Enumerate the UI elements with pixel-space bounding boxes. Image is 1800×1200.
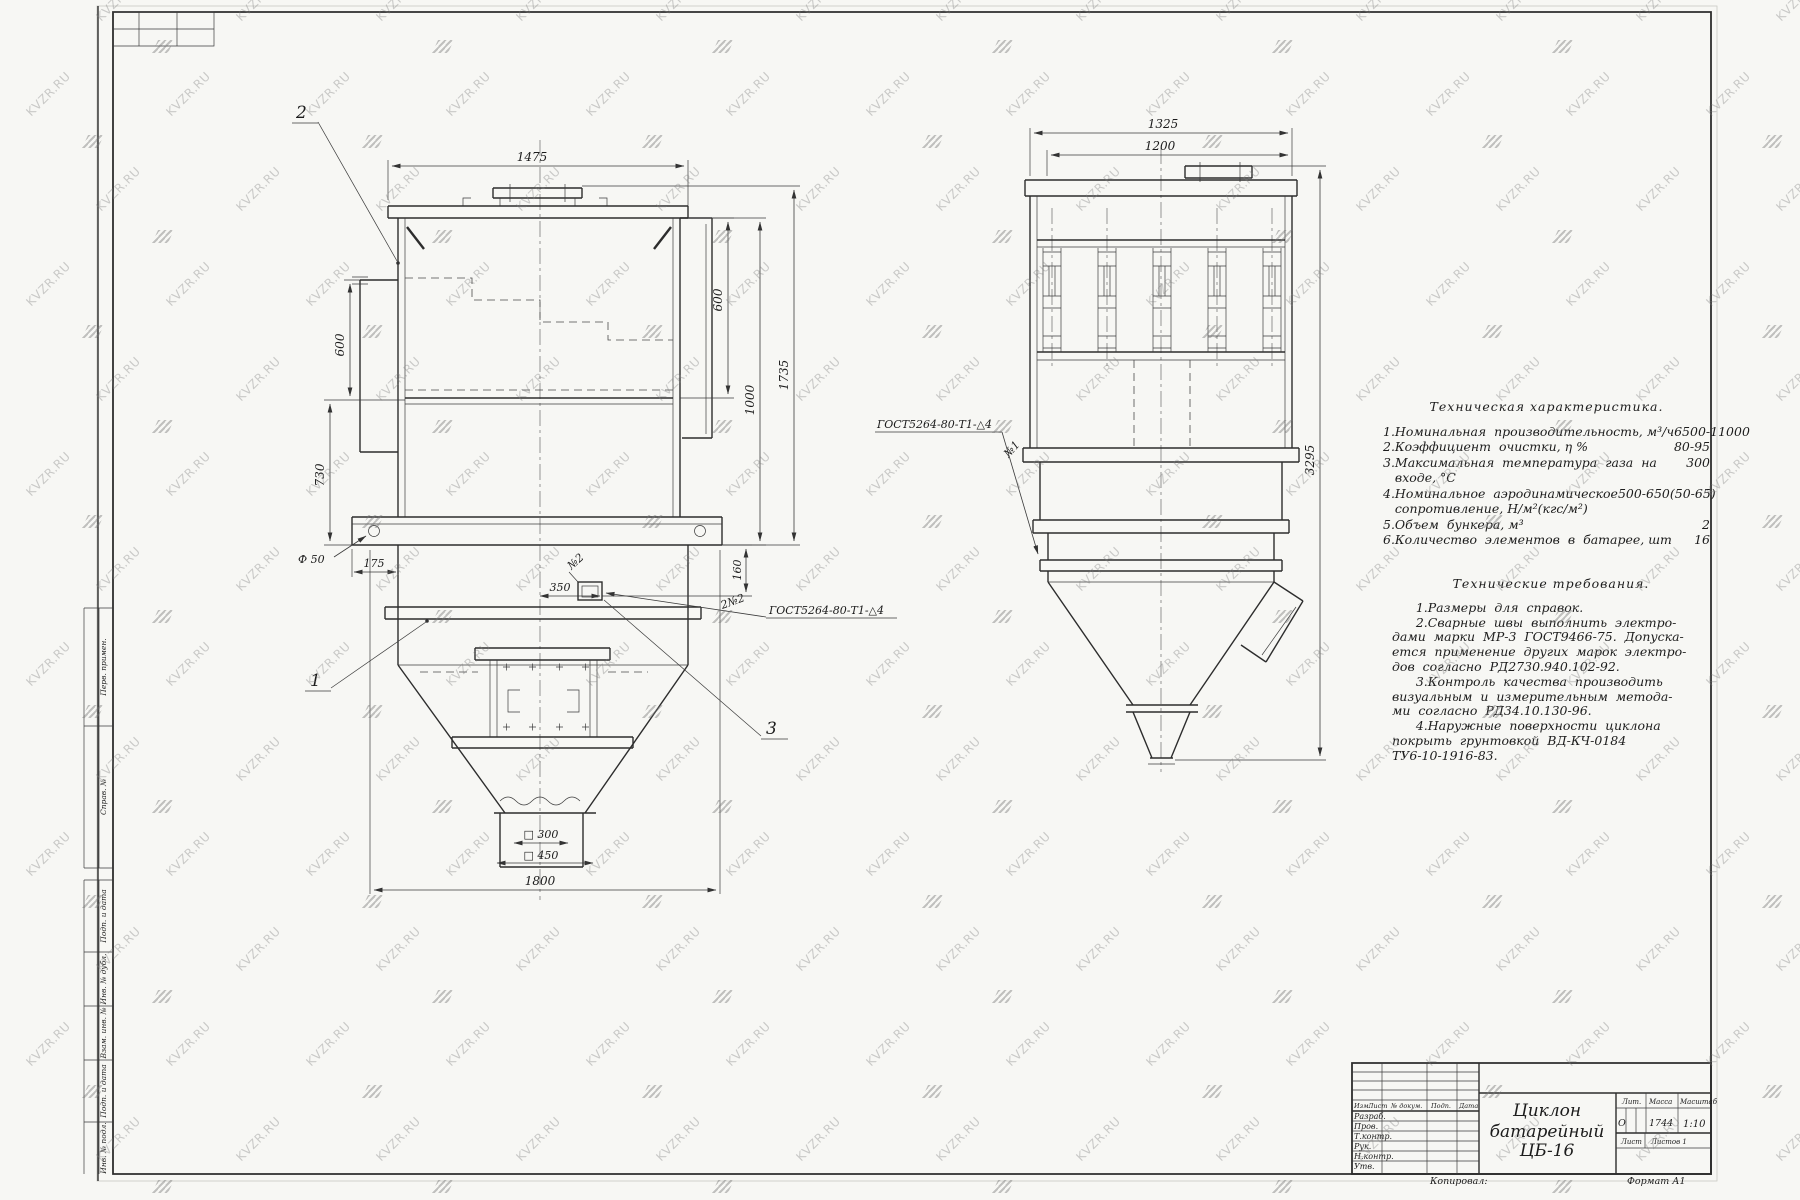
margin-label-podp-data-1: Подп. и дата <box>99 889 108 943</box>
tech-char-line: 2.Коэффициент очистки, η %80-95 <box>1383 439 1710 455</box>
tech-req-line: ТУ6-10-1916-83. <box>1392 749 1710 764</box>
tech-char-title: Техническая характеристика. <box>1383 399 1710 415</box>
margin-label-perv-primen: Перв. примен. <box>99 638 108 696</box>
tb-scale-value: 1:10 <box>1683 1119 1706 1130</box>
tech-req-title: Технические требования. <box>1392 577 1710 592</box>
front-dim-160: 160 <box>731 560 744 581</box>
front-dim-phi50: Ф 50 <box>298 553 325 566</box>
side-dim-height-3295: 3295 <box>1303 445 1317 476</box>
side-view: 1325 1200 3295 <box>875 117 1326 772</box>
front-dim-left-730: 730 <box>313 463 327 486</box>
tb-lit-value: О <box>1618 1118 1626 1129</box>
tb-col-data: Дата <box>1458 1102 1478 1110</box>
tb-row-utv: Утв. <box>1354 1162 1375 1171</box>
front-dim-175: 175 <box>364 557 385 570</box>
margin-label-podp-data-2: Подп. и дата <box>99 1064 108 1118</box>
front-weld-qty: 2№2 <box>718 591 746 612</box>
tech-req-line: 1.Размеры для справок. <box>1392 601 1710 616</box>
side-dim-top-1325: 1325 <box>1148 117 1179 131</box>
front-dim-outlet-flange: □ 450 <box>524 849 559 862</box>
tb-doc-title-line3: ЦБ-16 <box>1519 1141 1575 1161</box>
tech-char-line: 3.Максимальная температура газа на300 <box>1383 455 1710 471</box>
tech-req-line: визуальным и измерительным метода- <box>1392 690 1710 705</box>
drawing-sheet: Перв. примен. Справ. № Подп. и дата Инв.… <box>0 0 1800 1200</box>
margin-label-inv-dubl: Инв. № дубл. <box>99 954 108 1006</box>
tech-char-line: сопротивление, Н/м²(кгс/м²) <box>1383 501 1710 517</box>
tech-req-line: ми согласно РД34.10.130-96. <box>1392 704 1710 719</box>
corner-stamp <box>113 12 214 46</box>
kopiroval-label: Копировал: <box>1429 1176 1488 1187</box>
tb-col-podp: Подп. <box>1430 1102 1451 1110</box>
side-dim-top-1200: 1200 <box>1145 139 1176 153</box>
tech-char-line: 5.Объем бункера, м³2 <box>1383 517 1710 533</box>
left-margin-column: Перв. примен. Справ. № Подп. и дата Инв.… <box>84 608 113 1175</box>
tb-lit-label: Лит. <box>1621 1098 1641 1106</box>
front-weld-gost-label: ГОСТ5264-80-Т1-△4 <box>768 604 884 617</box>
front-callout-2: 2 <box>295 103 307 123</box>
tech-char-line: входе, °С <box>1383 470 1710 486</box>
format-label: Формат А1 <box>1627 1176 1686 1187</box>
tech-req-line: ется применение других марок электро- <box>1392 645 1710 660</box>
front-callout-3: 3 <box>766 719 777 739</box>
tb-row-prov: Пров. <box>1353 1122 1378 1131</box>
margin-label-inv-podl: Инв. № подл. <box>99 1122 108 1174</box>
front-dim-left-600: 600 <box>333 333 347 356</box>
front-dim-right-600: 600 <box>711 288 725 311</box>
tb-col-list: Лист <box>1367 1102 1387 1110</box>
front-view: 1475 <box>292 103 897 900</box>
tech-req-line: дов согласно РД2730.940.102-92. <box>1392 660 1710 675</box>
front-weld-no2: №2 <box>564 551 586 573</box>
tb-row-tkontr: Т.контр. <box>1354 1132 1392 1141</box>
technical-requirements: Технические требования. 1.Размеры для сп… <box>1392 577 1710 764</box>
side-weld-no1: №1 <box>1001 438 1023 460</box>
tb-col-docum: № докум. <box>1390 1102 1422 1110</box>
tb-row-ruk: Рук. <box>1353 1142 1371 1151</box>
front-dim-width-top: 1475 <box>517 150 548 164</box>
tech-char-line: 6.Количество элементов в батарее, шт16 <box>1383 532 1710 548</box>
tech-req-line: 3.Контроль качества производить <box>1392 675 1710 690</box>
tb-mass-value: 1744 <box>1649 1118 1673 1129</box>
tech-req-line: покрыть грунтовкой ВД-КЧ-0184 <box>1392 734 1710 749</box>
margin-label-vzam-inv: Взам. инв. № <box>99 1007 108 1059</box>
tb-sheets-label: Листов 1 <box>1650 1138 1687 1146</box>
tech-req-line: 4.Наружные поверхности циклона <box>1392 719 1710 734</box>
front-dim-width-bottom: 1800 <box>525 874 556 888</box>
front-dim-right-1000: 1000 <box>743 384 757 415</box>
title-block: Изм. Лист № докум. Подп. Дата Разраб. Пр… <box>1352 1063 1718 1174</box>
tech-char-line: 1.Номинальная производительность, м³/ч65… <box>1383 424 1710 440</box>
tech-req-line: дами марки МР-3 ГОСТ9466-75. Допуска- <box>1392 630 1710 645</box>
front-dim-right-1735: 1735 <box>777 360 791 391</box>
margin-label-sprav: Справ. № <box>99 779 108 815</box>
tb-row-nkontr: Н.контр. <box>1353 1152 1394 1161</box>
technical-characteristics: Техническая характеристика. 1.Номинальна… <box>1383 399 1710 548</box>
tech-char-line: 4.Номинальное аэродинамическое500-650(50… <box>1383 486 1710 502</box>
tech-req-line: 2.Сварные швы выполнить электро- <box>1392 616 1710 631</box>
tb-row-razrab: Разраб. <box>1353 1112 1386 1121</box>
front-callout-1: 1 <box>310 671 321 691</box>
side-weld-gost-label: ГОСТ5264-80-Т1-△4 <box>876 418 992 431</box>
tb-mass-label: Масса <box>1648 1098 1672 1106</box>
tb-scale-label: Масштаб <box>1679 1098 1718 1106</box>
front-dim-outlet-opening: □ 300 <box>524 828 559 841</box>
tb-doc-title-line1: Циклон <box>1512 1101 1581 1121</box>
tb-doc-title-line2: батарейный <box>1490 1122 1605 1142</box>
front-dim-350: 350 <box>550 581 571 594</box>
tb-sheet-label: Лист <box>1620 1138 1642 1146</box>
